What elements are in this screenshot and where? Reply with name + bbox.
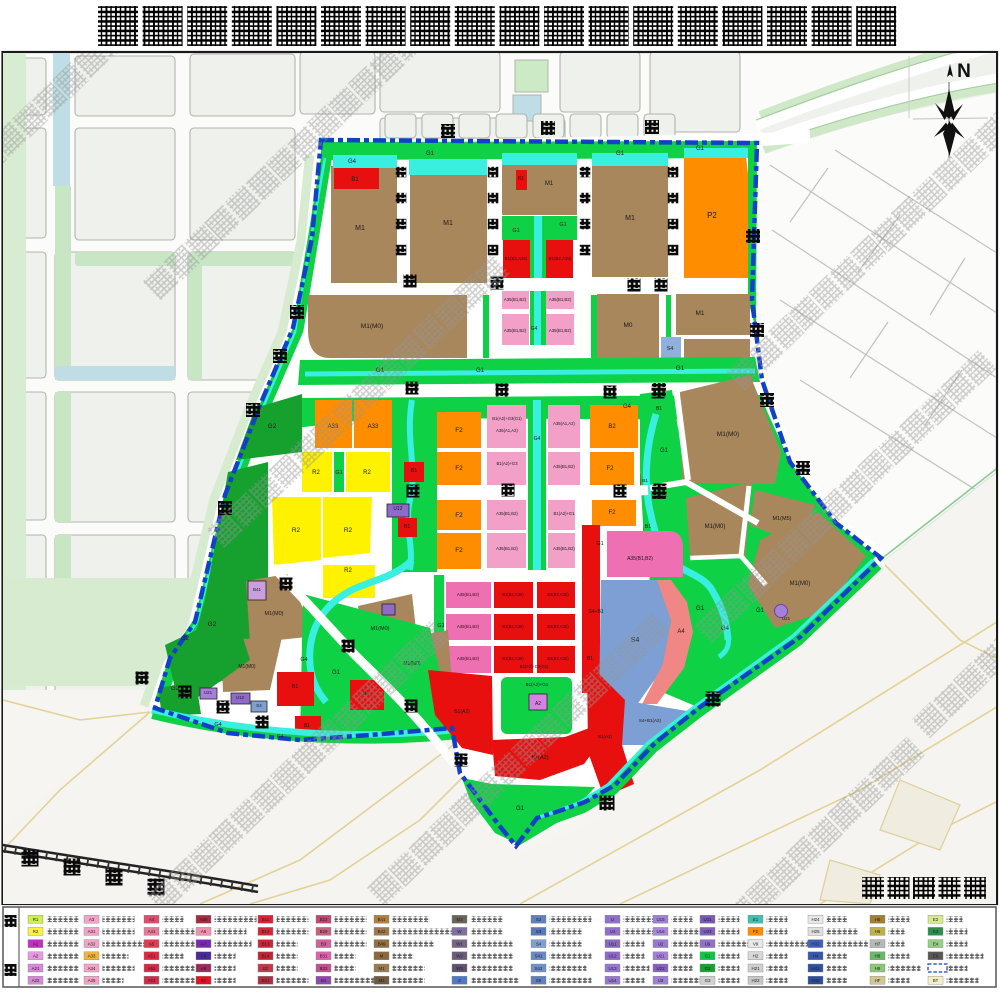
svg-text:G1: G1 xyxy=(559,222,566,228)
svg-text:M2: M2 xyxy=(378,978,385,983)
svg-text:U32: U32 xyxy=(703,929,712,934)
svg-text:A35(B1,B2): A35(B1,B2) xyxy=(549,328,572,333)
svg-text:A21: A21 xyxy=(32,966,40,971)
svg-text:P2: P2 xyxy=(707,211,717,220)
svg-text:A35(B1,B2): A35(B1,B2) xyxy=(457,656,480,661)
svg-text:B4: B4 xyxy=(321,978,327,983)
svg-text:B1(B2,A35): B1(B2,A35) xyxy=(502,592,524,597)
svg-text:U16: U16 xyxy=(656,929,665,934)
svg-text:F2: F2 xyxy=(753,929,759,934)
svg-text:E9: E9 xyxy=(933,954,939,959)
svg-text:A2: A2 xyxy=(33,954,39,959)
svg-text:B1(A2): B1(A2) xyxy=(454,709,470,715)
svg-text:U12: U12 xyxy=(393,506,402,512)
svg-text:G4: G4 xyxy=(623,404,632,410)
svg-text:R2: R2 xyxy=(344,568,352,574)
svg-text:F2: F2 xyxy=(455,427,463,434)
svg-text:B31: B31 xyxy=(320,954,328,959)
svg-text:U11: U11 xyxy=(609,941,617,946)
svg-text:A4: A4 xyxy=(677,629,685,635)
svg-text:U: U xyxy=(611,917,614,922)
svg-text:M1(M0): M1(M0) xyxy=(265,611,284,617)
svg-text:S2: S2 xyxy=(536,917,542,922)
svg-text:R2: R2 xyxy=(344,527,353,534)
svg-text:H42: H42 xyxy=(811,978,820,983)
svg-text:B12: B12 xyxy=(262,929,270,934)
svg-text:A33: A33 xyxy=(88,954,96,959)
svg-text:A33: A33 xyxy=(368,424,379,430)
svg-text:R1: R1 xyxy=(33,917,39,922)
svg-text:G4: G4 xyxy=(214,722,221,728)
svg-text:B1: B1 xyxy=(642,478,648,483)
svg-text:R2: R2 xyxy=(292,527,301,534)
svg-text:M1(M5): M1(M5) xyxy=(773,516,792,522)
svg-text:A35(B1,B2): A35(B1,B2) xyxy=(504,328,527,333)
svg-text:B49: B49 xyxy=(378,941,386,946)
svg-text:G2: G2 xyxy=(208,621,217,628)
svg-text:G1: G1 xyxy=(660,448,669,454)
svg-text:A59: A59 xyxy=(200,917,208,922)
svg-text:A51: A51 xyxy=(148,954,156,959)
svg-text:A53: A53 xyxy=(148,978,156,983)
svg-text:R2: R2 xyxy=(33,929,39,934)
svg-text:E1: E1 xyxy=(753,917,759,922)
svg-text:G1: G1 xyxy=(676,365,685,372)
svg-text:B14: B14 xyxy=(262,954,270,959)
svg-text:A8: A8 xyxy=(201,954,207,959)
svg-text:U12: U12 xyxy=(236,695,245,700)
svg-text:A1: A1 xyxy=(33,941,39,946)
svg-text:R2: R2 xyxy=(312,470,320,476)
svg-text:G1: G1 xyxy=(616,151,625,157)
svg-text:S4: S4 xyxy=(667,346,674,352)
svg-text:B1(B2,A35): B1(B2,A35) xyxy=(505,256,528,261)
svg-text:A32: A32 xyxy=(88,941,96,946)
svg-text:G2: G2 xyxy=(268,423,277,430)
svg-text:B11: B11 xyxy=(262,917,270,922)
svg-text:B1(A2)+G1: B1(A2)+G1 xyxy=(553,511,575,516)
svg-text:N: N xyxy=(957,61,971,82)
svg-text:U31: U31 xyxy=(703,917,712,922)
svg-text:B1: B1 xyxy=(351,177,359,183)
svg-text:S4+B1(A2): S4+B1(A2) xyxy=(639,718,662,723)
svg-text:A35(B1,B2): A35(B1,B2) xyxy=(627,556,653,562)
svg-text:E4: E4 xyxy=(933,941,939,946)
svg-text:S3: S3 xyxy=(536,929,542,934)
svg-text:S4: S4 xyxy=(536,941,542,946)
svg-text:G1: G1 xyxy=(705,954,711,959)
svg-text:R2: R2 xyxy=(363,470,371,476)
svg-text:M1(M0): M1(M0) xyxy=(717,431,739,438)
svg-text:B1(A2)+G1: B1(A2)+G1 xyxy=(526,682,549,687)
svg-text:H25: H25 xyxy=(811,929,820,934)
svg-text:B1(B2,A35): B1(B2,A35) xyxy=(547,624,569,629)
svg-text:H6: H6 xyxy=(875,929,881,934)
svg-text:S42: S42 xyxy=(535,966,543,971)
svg-text:F2: F2 xyxy=(606,466,614,472)
svg-text:M1: M1 xyxy=(378,966,385,971)
svg-text:H7: H7 xyxy=(875,941,881,946)
svg-text:U21: U21 xyxy=(656,954,665,959)
svg-text:H24: H24 xyxy=(811,917,820,922)
svg-text:B2: B2 xyxy=(263,966,269,971)
svg-text:M1: M1 xyxy=(625,215,635,222)
svg-text:A35(A1,A2): A35(A1,A2) xyxy=(553,421,575,426)
svg-text:G1: G1 xyxy=(516,806,525,812)
svg-text:B21: B21 xyxy=(262,978,270,983)
svg-text:H8: H8 xyxy=(875,954,881,959)
svg-text:G1: G1 xyxy=(332,670,341,676)
svg-text:B1(B2,A35): B1(B2,A35) xyxy=(549,256,572,261)
svg-text:W1: W1 xyxy=(456,941,463,946)
svg-text:M1: M1 xyxy=(355,225,365,232)
svg-text:B32: B32 xyxy=(320,966,328,971)
svg-text:B1: B1 xyxy=(292,684,299,690)
svg-text:HF: HF xyxy=(875,978,881,983)
svg-text:A35(A1,A2): A35(A1,A2) xyxy=(496,428,518,433)
svg-text:M1: M1 xyxy=(443,220,453,227)
svg-text:S: S xyxy=(458,978,461,983)
svg-text:A35(B1,B2): A35(B1,B2) xyxy=(553,464,575,469)
svg-text:F2: F2 xyxy=(455,547,463,554)
svg-text:G4: G4 xyxy=(277,734,284,740)
svg-text:V9: V9 xyxy=(753,941,759,946)
svg-text:G1: G1 xyxy=(596,541,603,547)
svg-text:B22: B22 xyxy=(320,917,328,922)
svg-text:B41: B41 xyxy=(378,917,386,922)
svg-text:B41: B41 xyxy=(253,587,262,592)
svg-text:B1: B1 xyxy=(587,656,593,662)
svg-text:A31: A31 xyxy=(88,929,96,934)
svg-text:G2: G2 xyxy=(705,966,711,971)
svg-text:U3: U3 xyxy=(658,978,664,983)
svg-text:U22: U22 xyxy=(656,966,665,971)
svg-text:U15: U15 xyxy=(656,917,665,922)
svg-text:G4: G4 xyxy=(534,436,541,442)
svg-text:F2: F2 xyxy=(455,512,463,519)
svg-text:B1(A2)+G3(G1): B1(A2)+G3(G1) xyxy=(492,416,522,421)
svg-text:M1(M0): M1(M0) xyxy=(790,581,811,587)
svg-text:A35(B1,B2): A35(B1,B2) xyxy=(549,297,572,302)
svg-text:B1: B1 xyxy=(404,524,411,530)
svg-text:B1(A2): B1(A2) xyxy=(598,734,613,739)
svg-text:B1(B2,A35): B1(B2,A35) xyxy=(502,656,524,661)
svg-text:M1: M1 xyxy=(695,310,704,317)
svg-text:F2: F2 xyxy=(608,510,616,516)
svg-text:M1: M1 xyxy=(545,181,554,187)
svg-text:U14: U14 xyxy=(608,978,617,983)
svg-text:M1(M0): M1(M0) xyxy=(371,626,390,632)
svg-text:G4: G4 xyxy=(348,159,357,165)
svg-text:G1: G1 xyxy=(696,605,705,612)
svg-text:A35(B1,B2): A35(B1,B2) xyxy=(553,546,575,551)
svg-text:U9: U9 xyxy=(705,941,711,946)
svg-text:M0: M0 xyxy=(623,322,632,329)
svg-text:G1: G1 xyxy=(756,608,765,614)
svg-text:U2: U2 xyxy=(658,941,664,946)
svg-text:A41: A41 xyxy=(148,929,156,934)
svg-text:B1: B1 xyxy=(304,723,310,729)
svg-text:M1(M0): M1(M0) xyxy=(705,524,726,530)
svg-text:A34: A34 xyxy=(88,966,96,971)
svg-text:H4: H4 xyxy=(813,954,819,959)
svg-text:S4: S4 xyxy=(256,703,262,708)
svg-text:H2: H2 xyxy=(753,954,759,959)
svg-text:G2: G2 xyxy=(171,686,180,692)
svg-text:G4: G4 xyxy=(531,326,538,332)
svg-text:B1: B1 xyxy=(411,468,418,474)
svg-text:G1: G1 xyxy=(335,470,342,476)
svg-text:A35(B1,B2): A35(B1,B2) xyxy=(457,624,480,629)
svg-text:U21: U21 xyxy=(204,690,213,695)
svg-text:W2: W2 xyxy=(456,954,463,959)
svg-text:A52: A52 xyxy=(148,966,156,971)
svg-text:H22: H22 xyxy=(751,978,760,983)
svg-text:A35(B1,B2): A35(B1,B2) xyxy=(457,592,480,597)
svg-text:A7: A7 xyxy=(201,941,207,946)
svg-text:H9: H9 xyxy=(875,966,881,971)
svg-text:A35(B1,B2): A35(B1,B2) xyxy=(496,511,518,516)
svg-text:B1(B2,A35): B1(B2,A35) xyxy=(547,592,569,597)
svg-text:F2: F2 xyxy=(455,465,463,472)
svg-text:M3: M3 xyxy=(456,917,463,922)
svg-text:M: M xyxy=(380,954,384,959)
svg-text:A35(B1,B2): A35(B1,B2) xyxy=(504,297,527,302)
svg-text:B13: B13 xyxy=(262,941,270,946)
svg-text:G1: G1 xyxy=(696,146,705,152)
svg-text:B1: B1 xyxy=(656,406,662,412)
svg-text:G1: G1 xyxy=(476,368,485,374)
svg-text:A35(B1,B2): A35(B1,B2) xyxy=(496,546,518,551)
svg-text:U12: U12 xyxy=(608,954,617,959)
svg-text:S41: S41 xyxy=(535,954,543,959)
svg-text:H5: H5 xyxy=(875,917,881,922)
svg-text:A22: A22 xyxy=(32,978,40,983)
svg-text:U13: U13 xyxy=(608,966,617,971)
svg-text:G2: G2 xyxy=(181,636,190,642)
svg-text:G4: G4 xyxy=(300,657,307,663)
svg-text:B1(A2)+G3(G1): B1(A2)+G3(G1) xyxy=(520,664,549,669)
svg-text:E3: E3 xyxy=(933,929,939,934)
svg-text:A3: A3 xyxy=(89,917,95,922)
svg-text:A4: A4 xyxy=(149,917,155,922)
svg-text:B29: B29 xyxy=(320,929,328,934)
svg-text:A35: A35 xyxy=(88,978,96,983)
svg-text:B1: B1 xyxy=(201,978,207,983)
svg-text:BT: BT xyxy=(933,978,939,983)
svg-text:E2: E2 xyxy=(933,917,939,922)
svg-text:B1: B1 xyxy=(645,524,651,530)
svg-text:M1(M0): M1(M0) xyxy=(361,323,383,330)
svg-text:B1(A2)+G3: B1(A2)+G3 xyxy=(496,461,518,466)
svg-text:A6: A6 xyxy=(201,929,207,934)
svg-text:H21: H21 xyxy=(751,966,760,971)
svg-text:B1: B1 xyxy=(518,176,524,182)
svg-text:A5: A5 xyxy=(149,941,155,946)
svg-text:U21: U21 xyxy=(782,616,791,621)
svg-text:S9: S9 xyxy=(536,978,542,983)
svg-text:B1(B2,A35): B1(B2,A35) xyxy=(502,624,524,629)
svg-text:H41: H41 xyxy=(811,966,820,971)
svg-text:G1: G1 xyxy=(512,228,519,234)
svg-text:B1(B2,A35): B1(B2,A35) xyxy=(547,656,569,661)
svg-text:A2: A2 xyxy=(535,701,541,707)
svg-text:B3: B3 xyxy=(321,941,327,946)
svg-text:A9: A9 xyxy=(201,966,207,971)
svg-text:B42: B42 xyxy=(378,929,386,934)
svg-text:B2: B2 xyxy=(608,424,616,430)
svg-text:S4+B1: S4+B1 xyxy=(588,609,603,615)
svg-text:H32: H32 xyxy=(811,941,820,946)
svg-text:U1: U1 xyxy=(610,929,616,934)
svg-text:G3: G3 xyxy=(705,978,711,983)
svg-text:M1(M0): M1(M0) xyxy=(238,664,256,670)
svg-text:W3: W3 xyxy=(456,966,463,971)
svg-text:G1: G1 xyxy=(426,151,435,157)
